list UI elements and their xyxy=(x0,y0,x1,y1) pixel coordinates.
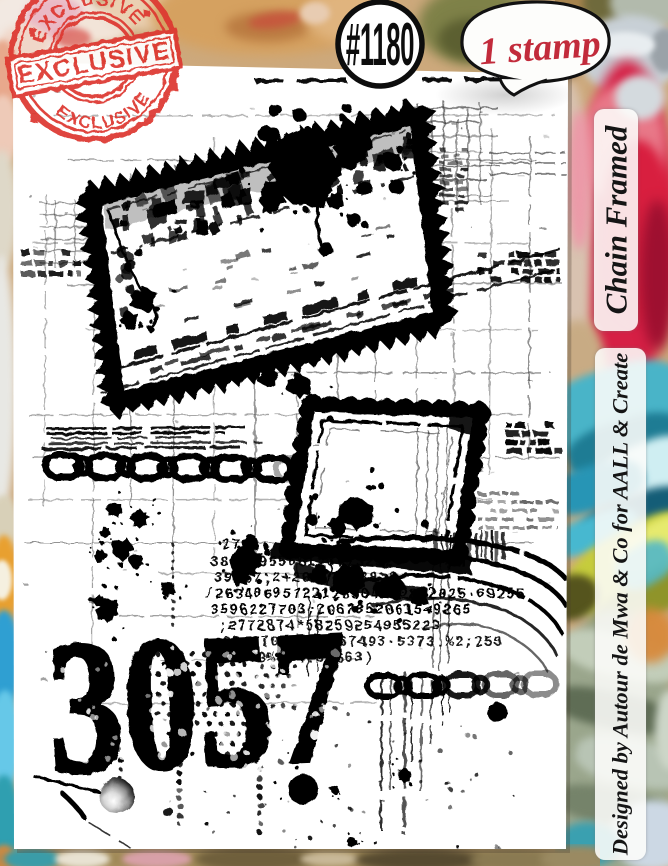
svg-text:3834495566126723232.: 3834495566126723232. xyxy=(210,555,404,571)
svg-text:39957;2+26217663833: 39957;2+26217663833 xyxy=(214,571,398,587)
svg-text:#1180: #1180 xyxy=(346,10,414,78)
svg-text:2728: 2728 xyxy=(222,538,261,554)
svg-text:1 stamp: 1 stamp xyxy=(478,23,602,73)
